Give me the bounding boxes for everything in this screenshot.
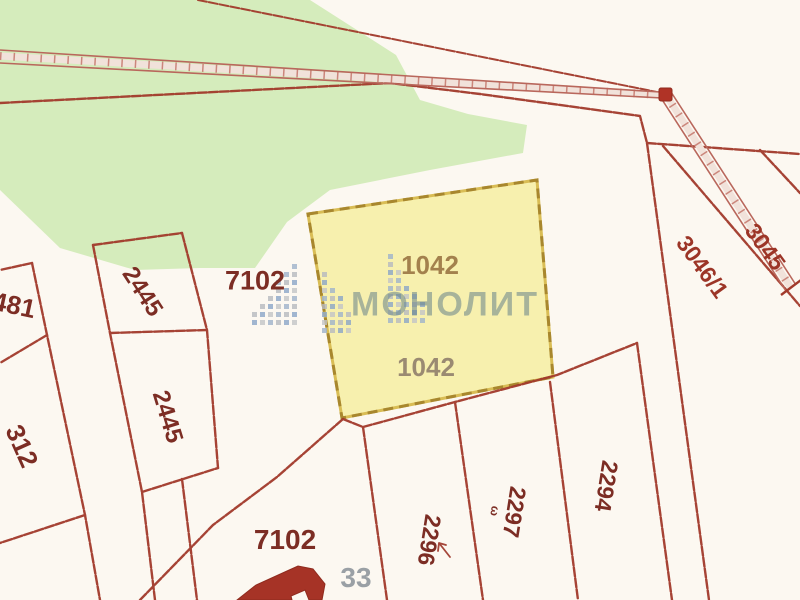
parcel-label-7102-top: 7102 (225, 268, 285, 295)
parcel-label-481: 481 (0, 288, 38, 322)
parcel-label-33: 33 (340, 564, 371, 592)
power-line-node (659, 88, 672, 101)
parcel-label-1042-bottom: 1042 (397, 354, 455, 380)
cadastral-map[interactable]: 481 2445 2445 312 7102 1042 1042 3046/1 … (0, 0, 800, 600)
parcel-label-omega-mark: ω (488, 505, 501, 517)
parcel-label-7102-bottom: 7102 (254, 526, 316, 554)
watermark-brand-text: МОНОЛИТ (351, 286, 539, 325)
building-footprint (237, 566, 325, 600)
parcel-label-1042-top: 1042 (401, 252, 459, 278)
